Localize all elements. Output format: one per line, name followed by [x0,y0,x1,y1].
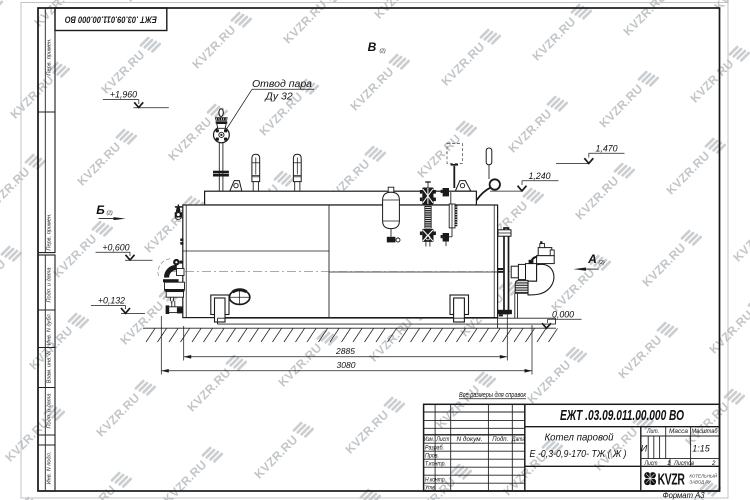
svg-text:1: 1 [667,460,670,467]
svg-text:ЕЖТ .03.09.011.00.000 ВО: ЕЖТ .03.09.011.00.000 ВО [560,408,684,424]
svg-text:0,000: 0,000 [552,309,574,319]
svg-text:КОТЕЛЬНЫЙ: КОТЕЛЬНЫЙ [689,474,717,479]
svg-text:Е -0,3-0,9-170- ТЖ ( Ж ): Е -0,3-0,9-170- ТЖ ( Ж ) [530,448,627,460]
svg-text:(2): (2) [107,211,113,217]
svg-text:Ду 32: Ду 32 [264,91,293,103]
svg-text:Дата: Дата [511,436,525,443]
svg-text:N докум.: N докум. [457,436,483,443]
svg-text:А: А [587,252,597,266]
svg-text:Масштаб: Масштаб [692,428,718,435]
svg-text:И: И [641,444,648,454]
svg-text:(2): (2) [380,49,386,55]
svg-text:Пров.: Пров. [425,452,439,459]
svg-text:+0,132: +0,132 [98,296,125,306]
svg-text:Взам. инв. N: Взам. инв. N [47,350,53,384]
svg-text:В: В [368,40,377,54]
svg-text:1,240: 1,240 [528,171,550,181]
svg-text:Котел паровой: Котел паровой [545,432,614,444]
svg-text:2885: 2885 [335,346,355,356]
svg-text:KVZR: KVZR [658,471,685,488]
svg-text:Разраб.: Разраб. [425,444,444,451]
svg-text:Б: Б [96,203,105,217]
svg-text:Лит.: Лит. [646,428,659,435]
svg-text:3080: 3080 [337,360,356,370]
svg-text:Н.контр.: Н.контр. [425,476,446,483]
svg-text:Подп.: Подп. [492,436,508,443]
svg-text:Листов: Листов [673,460,695,467]
svg-text:ЕЖТ .03.09.011.00.000 ВО: ЕЖТ .03.09.011.00.000 ВО [64,14,156,25]
svg-text:1,470: 1,470 [595,143,617,153]
svg-text:Инв. N подл.: Инв. N подл. [47,452,53,485]
svg-text:Утв.: Утв. [424,484,436,491]
svg-text:Все размеры для справок: Все размеры для справок [459,390,526,399]
svg-text:2: 2 [711,460,716,467]
svg-text:Подп. и дата: Подп. и дата [47,393,53,428]
svg-text:(2): (2) [599,260,605,266]
svg-text:Т.контр.: Т.контр. [425,460,446,467]
svg-text:Лист: Лист [436,436,450,443]
svg-text:1:15: 1:15 [692,444,711,454]
svg-text:Перв. примен.: Перв. примен. [47,213,53,250]
svg-text:Перв. примен.: Перв. примен. [47,38,53,75]
svg-text:Инв. N дубл.: Инв. N дубл. [47,313,53,345]
svg-text:Изм.: Изм. [424,436,434,443]
svg-text:+1,960: +1,960 [110,90,137,100]
svg-text:Лист: Лист [644,460,658,467]
svg-text:Отвод пара: Отвод пара [252,78,312,90]
svg-text:ЗАВОД.РУ: ЗАВОД.РУ [689,480,712,485]
svg-text:Формат А3: Формат А3 [663,491,706,500]
svg-text:Масса: Масса [669,428,689,435]
svg-text:+0,600: +0,600 [102,242,129,252]
svg-text:Подп. и дата: Подп. и дата [47,267,53,302]
